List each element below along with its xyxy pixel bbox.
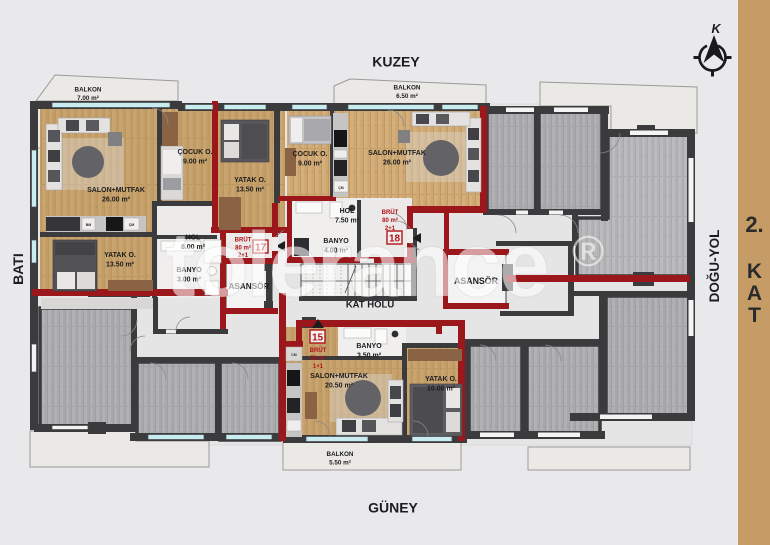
svg-text:ÇOCUK O.: ÇOCUK O.	[178, 149, 213, 156]
svg-text:7.00 m²: 7.00 m²	[77, 95, 99, 102]
svg-text:10.00 m²: 10.00 m²	[427, 386, 456, 393]
svg-text:BALKON: BALKON	[327, 451, 354, 458]
svg-text:SALON+MUTFAK: SALON+MUTFAK	[310, 373, 368, 380]
svg-text:BATI: BATI	[10, 253, 26, 285]
svg-text:15: 15	[312, 333, 324, 344]
svg-text:DOĞU-YOL: DOĞU-YOL	[707, 230, 722, 303]
svg-text:BM: BM	[86, 223, 92, 227]
svg-text:YATAK O.: YATAK O.	[104, 252, 136, 259]
svg-text:GÜNEY: GÜNEY	[368, 500, 418, 516]
svg-text:K: K	[747, 260, 762, 283]
svg-text:13.50 m²: 13.50 m²	[236, 187, 265, 194]
svg-text:9.00 m²: 9.00 m²	[183, 159, 208, 166]
svg-text:A: A	[747, 282, 762, 305]
svg-text:SALON+MUTFAK: SALON+MUTFAK	[368, 150, 426, 157]
svg-text:T: T	[748, 304, 761, 327]
svg-text:BALKON: BALKON	[75, 87, 102, 94]
svg-text:ÇOCUK O.: ÇOCUK O.	[293, 151, 328, 158]
svg-text:3.50 m²: 3.50 m²	[357, 353, 382, 360]
svg-text:®: ®	[572, 227, 604, 276]
svg-text:YATAK O.: YATAK O.	[234, 177, 266, 184]
svg-text:ÇM: ÇM	[129, 223, 135, 227]
svg-text:1+1: 1+1	[313, 364, 324, 370]
svg-text:50 m²: 50 m²	[310, 355, 326, 362]
svg-text:KUZEY: KUZEY	[372, 54, 420, 70]
svg-text:26.00 m²: 26.00 m²	[383, 160, 412, 167]
svg-text:2.: 2.	[745, 212, 763, 237]
svg-text:20.50 m²: 20.50 m²	[325, 383, 354, 390]
svg-text:BANYO: BANYO	[356, 343, 382, 350]
svg-text:BRÜT: BRÜT	[310, 347, 327, 354]
svg-text:tolerance: tolerance	[165, 214, 548, 316]
svg-text:CM: CM	[291, 353, 297, 357]
svg-text:BALKON: BALKON	[394, 85, 421, 92]
svg-text:9.00 m²: 9.00 m²	[298, 161, 323, 168]
svg-text:SALON+MUTFAK: SALON+MUTFAK	[87, 187, 145, 194]
svg-text:6.50 m²: 6.50 m²	[396, 93, 418, 100]
svg-text:5.50 m²: 5.50 m²	[329, 460, 351, 467]
svg-text:YATAK O.: YATAK O.	[425, 376, 457, 383]
svg-text:13.50 m²: 13.50 m²	[106, 262, 135, 269]
svg-text:K: K	[711, 22, 721, 36]
svg-text:ÇM: ÇM	[338, 186, 344, 190]
svg-text:26.00 m²: 26.00 m²	[102, 197, 131, 204]
